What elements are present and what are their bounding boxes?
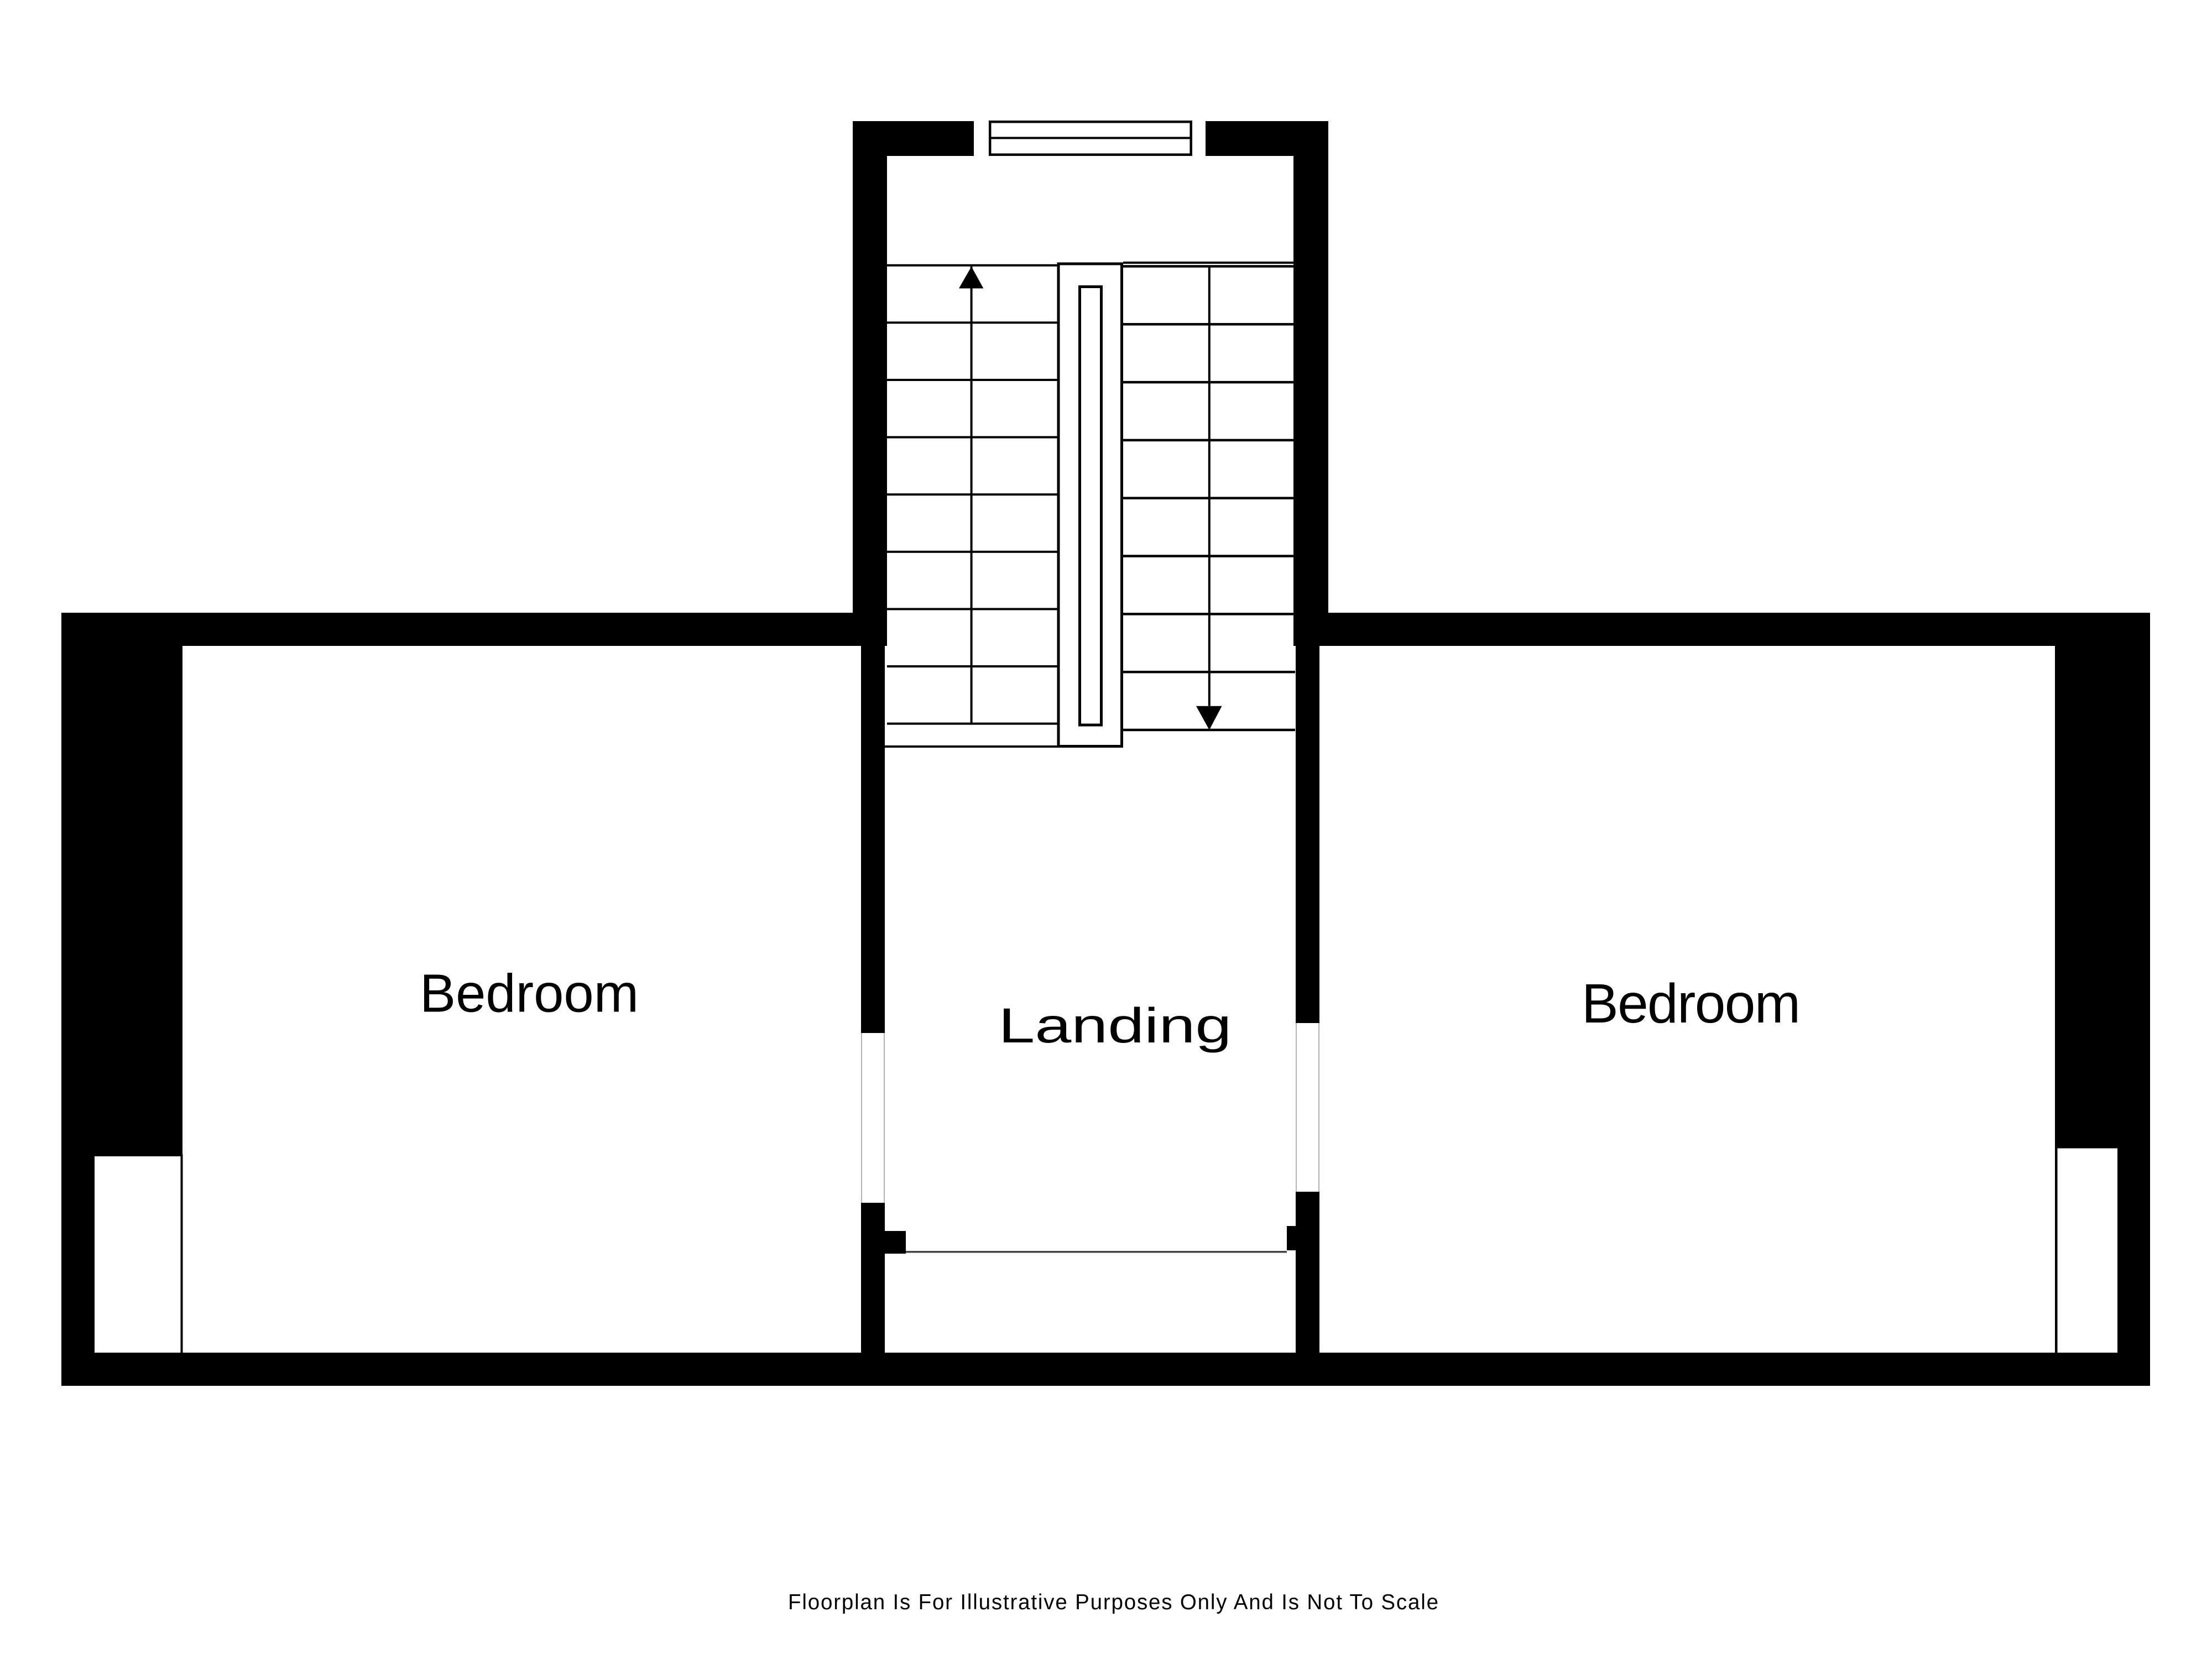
svg-text:Bedroom: Bedroom [1582,973,1801,1035]
svg-text:Floorplan Is For Illustrative: Floorplan Is For Illustrative Purposes O… [788,1590,1438,1614]
svg-text:Landing: Landing [998,998,1232,1053]
svg-text:Bedroom: Bedroom [420,963,639,1024]
